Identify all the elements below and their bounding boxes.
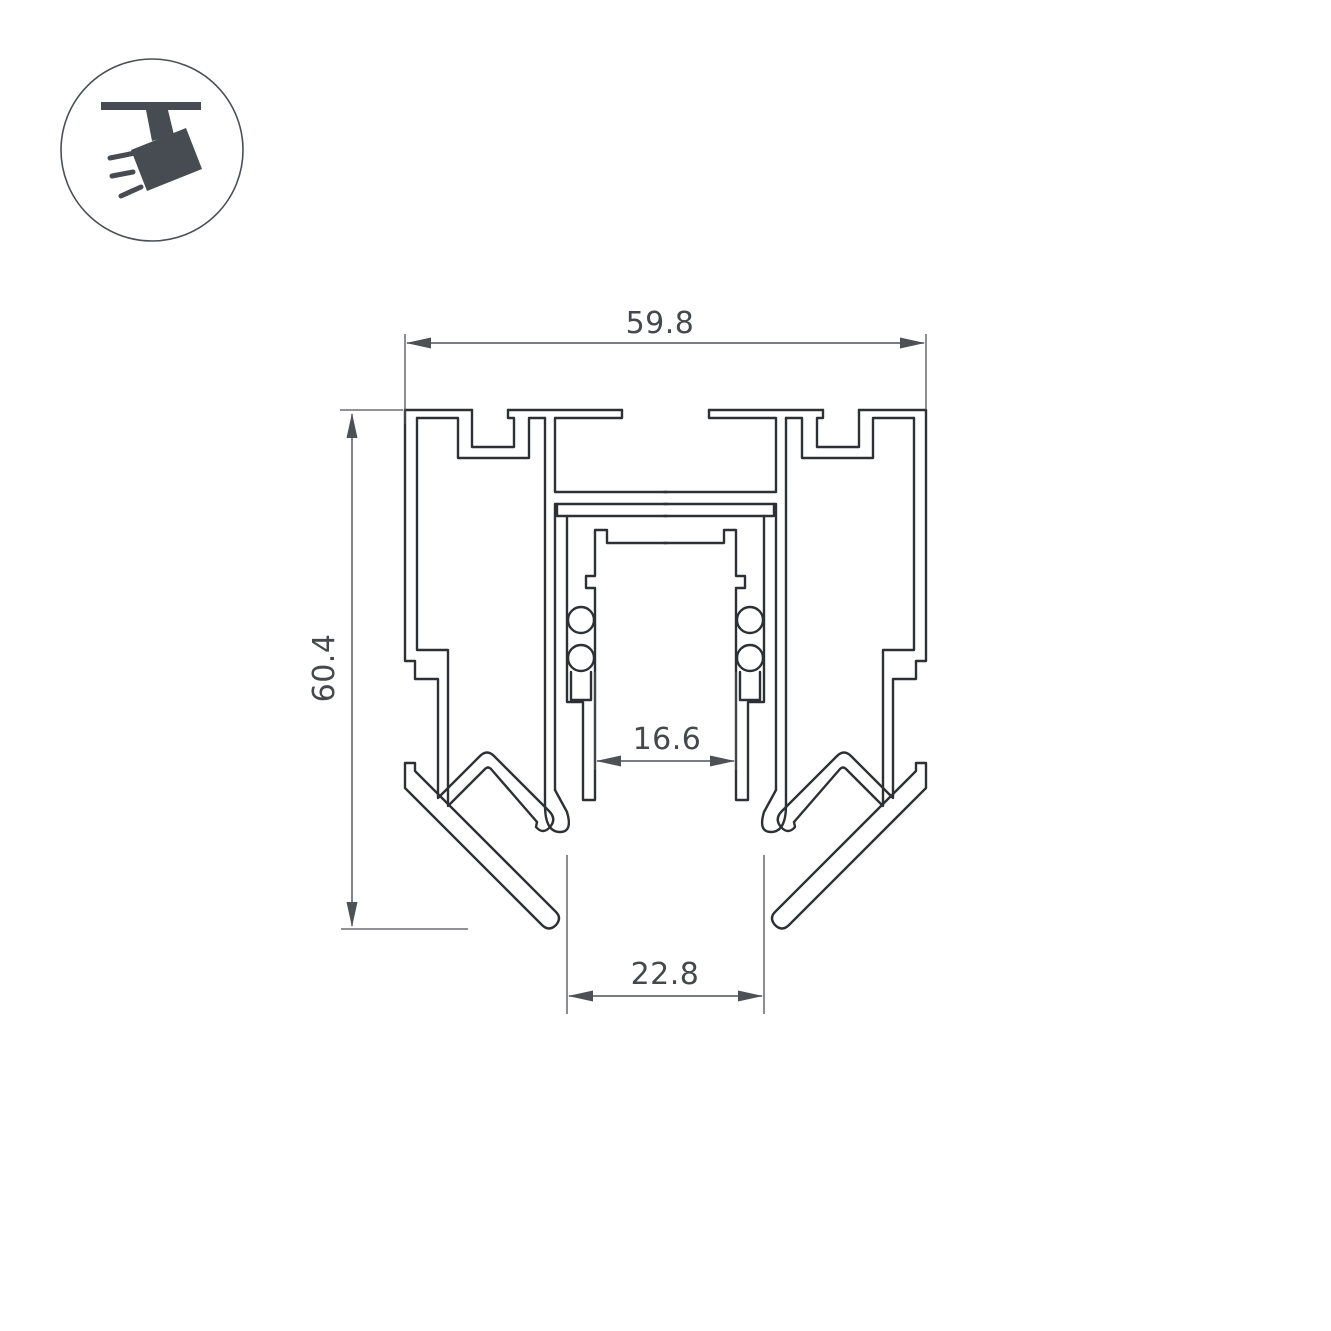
dimension-label-left-height: 60.4 bbox=[307, 634, 342, 703]
logo-track-spotlight bbox=[61, 59, 243, 241]
profile-right-half bbox=[664, 410, 926, 929]
track-bar-icon bbox=[101, 102, 201, 110]
dimension-label-bottom-width: 22.8 bbox=[631, 957, 700, 992]
profile-outline bbox=[405, 410, 926, 929]
extension-lines bbox=[340, 334, 926, 1014]
dimension-label-top-width: 59.8 bbox=[626, 306, 695, 341]
drawing-canvas: 59.8 60.4 16.6 22.8 bbox=[0, 0, 1331, 1331]
dimension-lines bbox=[352, 343, 924, 996]
dimension-arrows bbox=[347, 338, 926, 1002]
profile-drawing-svg: 59.8 60.4 16.6 22.8 bbox=[0, 0, 1331, 1331]
dimension-annotations: 59.8 60.4 16.6 22.8 bbox=[307, 306, 926, 1014]
dimension-label-inner-width: 16.6 bbox=[633, 722, 702, 757]
profile-left-half bbox=[405, 410, 667, 929]
